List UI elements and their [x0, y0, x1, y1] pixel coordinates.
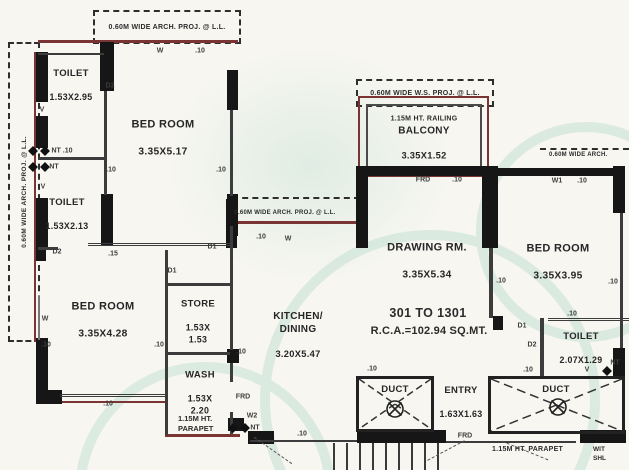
- wall: [250, 440, 357, 442]
- dim-label: .10: [567, 311, 577, 318]
- wall: [227, 70, 238, 110]
- room-label-bedroom3: BED ROOM 3.35X3.95: [527, 227, 590, 296]
- door-label: FRD: [458, 433, 472, 440]
- door-label: D1: [168, 268, 177, 275]
- door-label: FRD: [416, 177, 430, 184]
- parapet-right-note: 1.15M HT. PARAPET: [492, 446, 563, 453]
- room-label-store: STORE 1.53X 1.53: [181, 286, 215, 357]
- room-label-toilet1: TOILET 1.53X2.95: [50, 56, 93, 116]
- wall: [493, 316, 503, 330]
- railing-note: 1.15M HT. RAILING: [391, 116, 458, 123]
- wall: [228, 221, 360, 224]
- room-name: STORE: [181, 299, 215, 311]
- room-name: TOILET: [46, 197, 89, 209]
- wall: [38, 157, 105, 160]
- dim-label: .10: [452, 177, 462, 184]
- wall: [36, 390, 62, 404]
- door-label: D1: [208, 244, 217, 251]
- room-name: DUCT: [381, 384, 409, 396]
- room-label-bedroom2: BED ROOM 3.35X4.28: [72, 285, 135, 354]
- room-label-duct-small: DUCT: [381, 372, 409, 408]
- wall: [104, 91, 107, 195]
- dim-label: .15: [108, 251, 118, 258]
- room-name: TOILET: [560, 331, 603, 343]
- window-line: [38, 296, 40, 340]
- room-dims: 1.53X2.95: [50, 93, 93, 104]
- wall: [38, 40, 238, 43]
- nt-label: NT: [49, 164, 58, 171]
- room-dims: 1.53X 1.53: [181, 323, 215, 346]
- room-dims: 3.35X4.28: [72, 328, 135, 341]
- unit-title: 301 TO 1301: [389, 306, 466, 320]
- wall: [498, 168, 613, 176]
- dim-label: .10: [236, 349, 246, 356]
- room-label-toilet3: TOILET 2.07X1.29: [560, 319, 603, 379]
- wall: [36, 116, 48, 148]
- nt-label: NT: [250, 425, 259, 432]
- room-label-bedroom1: BED ROOM 3.35X5.17: [132, 103, 195, 172]
- wall: [230, 110, 233, 196]
- wall: [38, 53, 104, 55]
- room-dims: 1.53X2.13: [46, 222, 89, 233]
- room-label-kitchen: KITCHEN/ DINING 3.20X5.47: [273, 298, 323, 374]
- room-name: DRAWING RM.: [387, 240, 467, 254]
- room-name: BED ROOM: [132, 117, 195, 131]
- dim-label: .10: [103, 401, 113, 408]
- window-label: W2: [247, 413, 258, 420]
- wall: [60, 394, 168, 397]
- door-label: D1: [518, 323, 527, 330]
- wall: [165, 434, 240, 437]
- wall: [230, 363, 233, 382]
- room-dims: 1.63X1.63: [440, 410, 483, 421]
- wall: [482, 166, 498, 248]
- wall: [489, 248, 493, 318]
- wall: [613, 166, 625, 213]
- nt-label: NT .10: [51, 148, 72, 155]
- floor-plan: 0.60M WIDE ARCH. PROJ. @ L.L. 0.60M WIDE…: [0, 0, 629, 470]
- dim-label: .10: [106, 167, 116, 174]
- room-name: ENTRY: [440, 385, 483, 397]
- staircase: [333, 443, 445, 470]
- arch-projection-top: 0.60M WIDE ARCH. PROJ. @ L.L.: [93, 10, 241, 44]
- room-name: KITCHEN/ DINING: [273, 311, 323, 337]
- corner-note: WIT SHL: [593, 446, 606, 464]
- dim-label: .10: [496, 278, 506, 285]
- room-dims: 3.35X3.95: [527, 270, 590, 283]
- room-name: BALCONY: [398, 125, 450, 138]
- dim-label: .10: [608, 279, 618, 286]
- dim-label: .10: [297, 431, 307, 438]
- vent-label: V: [40, 107, 45, 114]
- room-dims: 3.20X5.47: [273, 349, 323, 361]
- room-name: BED ROOM: [72, 299, 135, 313]
- arch-left-note: 0.60M WIDE ARCH. PROJ. @ L.L.: [21, 136, 28, 248]
- room-name: TOILET: [50, 68, 93, 80]
- arch-mid-note: 0.60M WIDE ARCH. PROJ. @ L.L.: [234, 210, 335, 216]
- parapet-left-note: 1.15M HT. PARAPET: [178, 414, 213, 434]
- door-label: FRD: [236, 394, 250, 401]
- dim-label: .10: [367, 366, 377, 373]
- room-dims: 3.35X1.52: [398, 151, 450, 163]
- unit-area: R.C.A.=102.94 SQ.MT.: [371, 325, 488, 337]
- dim-label: .10: [154, 342, 164, 349]
- door-label: D2: [528, 342, 537, 349]
- wall: [356, 166, 368, 248]
- window-label: W: [157, 48, 164, 55]
- room-dims: 3.35X5.34: [387, 269, 467, 282]
- wall: [230, 226, 233, 350]
- vent-label: V: [41, 184, 46, 191]
- arch-top-note: 0.60M WIDE ARCH. PROJ. @ L.L.: [109, 24, 226, 31]
- dim-label: .10: [216, 167, 226, 174]
- room-dims: 2.07X1.29: [560, 356, 603, 367]
- room-label-entry: ENTRY 1.63X1.63: [440, 373, 483, 433]
- dim-label: .10: [523, 367, 533, 374]
- wall: [101, 194, 113, 246]
- window-label: W1: [552, 178, 563, 185]
- wall: [540, 318, 544, 376]
- arch-projection-right-line: [540, 148, 629, 150]
- window-label: W: [42, 316, 49, 323]
- wall: [36, 243, 46, 261]
- room-name: BED ROOM: [527, 241, 590, 255]
- nt-label: NT: [610, 360, 619, 367]
- dim-label: .10: [256, 234, 266, 241]
- room-label-toilet2: TOILET 1.53X2.13: [46, 185, 89, 245]
- wall: [620, 213, 623, 348]
- dim-label: .10: [195, 48, 205, 55]
- room-name: WASH: [185, 370, 215, 382]
- room-label-duct-large: DUCT: [542, 372, 570, 408]
- wall: [165, 250, 168, 435]
- arch-right-note: 0.60M WIDE ARCH.: [549, 152, 607, 158]
- door-label: D2: [106, 83, 115, 90]
- vent-label: V: [585, 367, 590, 374]
- room-label-drawing: DRAWING RM. 3.35X5.34: [387, 226, 467, 295]
- room-name: DUCT: [542, 384, 570, 396]
- dim-label: .10: [577, 178, 587, 185]
- door-label: D2: [53, 249, 62, 256]
- wall: [446, 441, 576, 443]
- arch-projection-mid-line: [232, 197, 360, 199]
- dim-label: .10: [41, 342, 51, 349]
- room-dims: 3.35X5.17: [132, 146, 195, 159]
- wall: [36, 52, 48, 102]
- window-label: W: [285, 236, 292, 243]
